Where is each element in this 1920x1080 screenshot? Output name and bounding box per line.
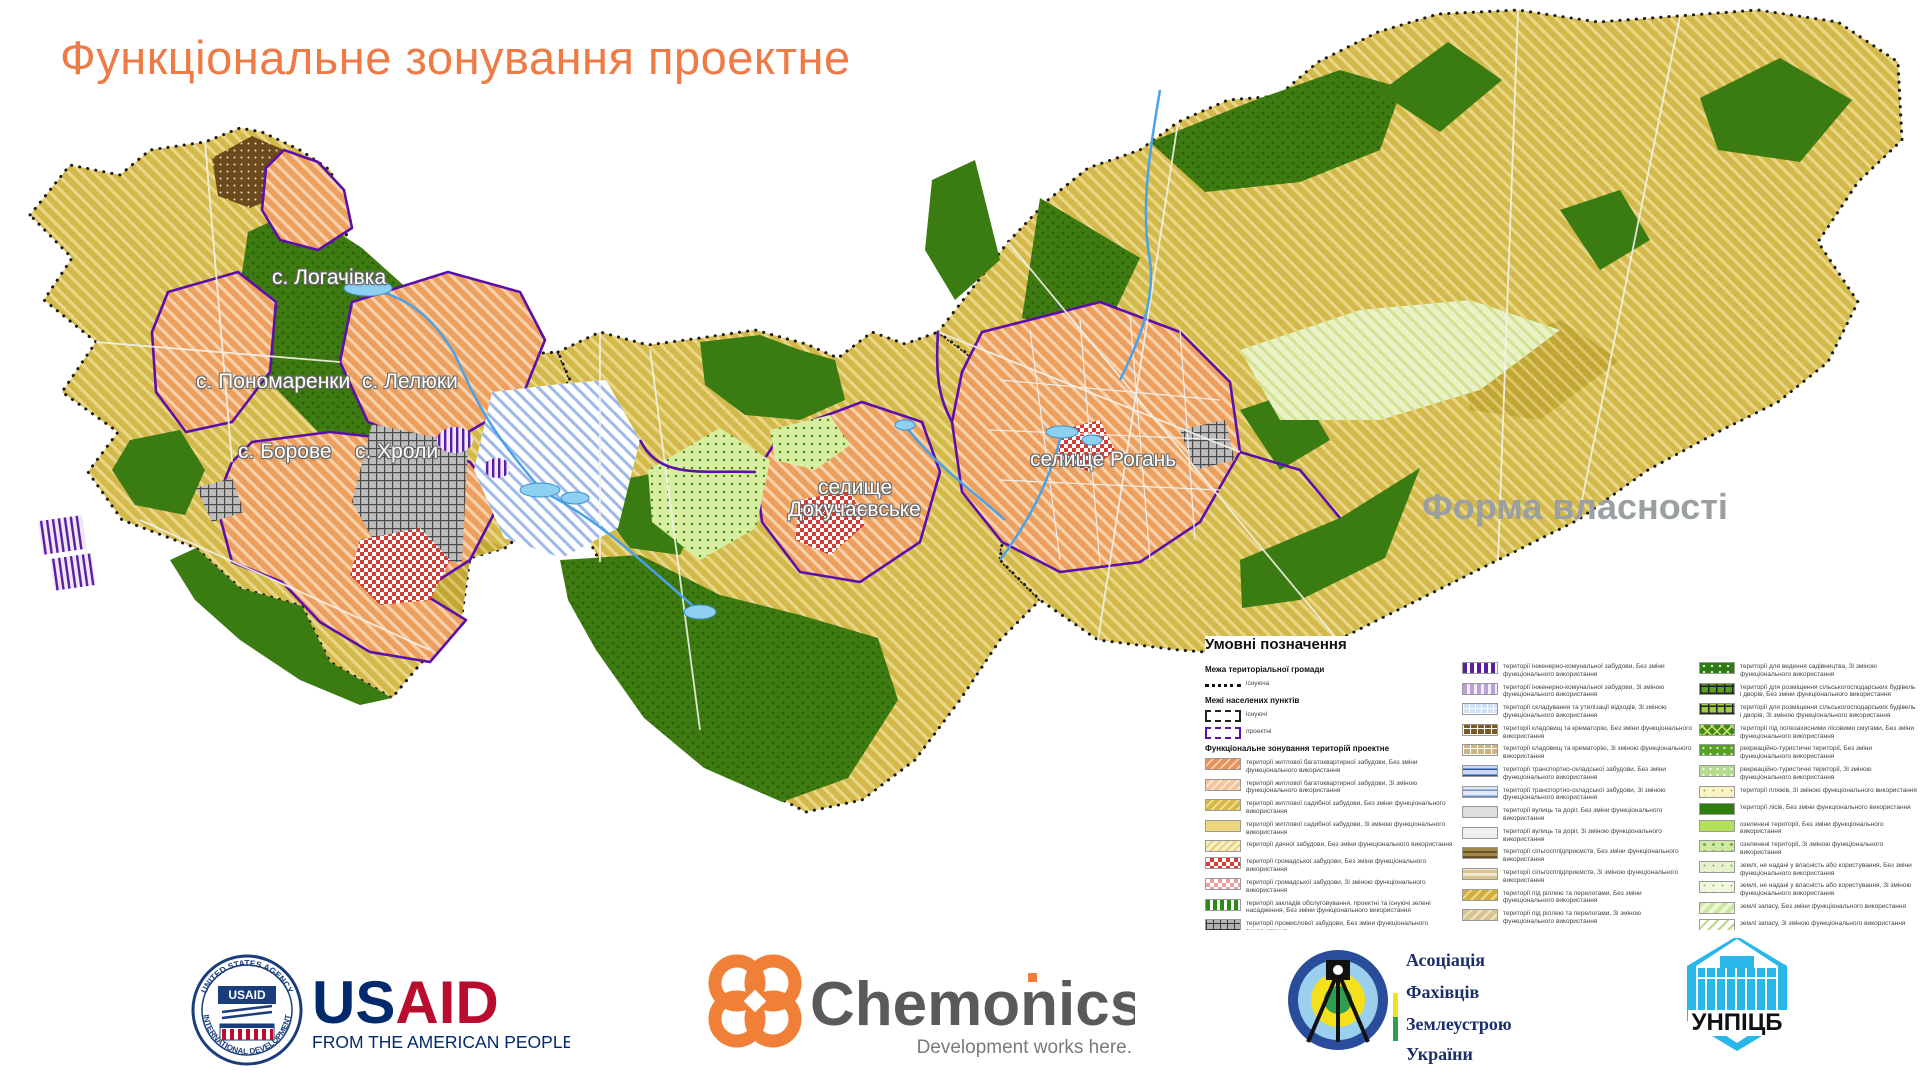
legend-swatch	[1205, 899, 1241, 911]
unpicb-hexagon-icon: УНПІЦБ	[1687, 938, 1788, 1051]
chemonics-i-dot	[1028, 973, 1037, 982]
legend-swatch	[1699, 744, 1735, 756]
legend-swatch	[1205, 779, 1241, 791]
legend-row: території сільгосппідприємств, Без зміни…	[1462, 847, 1694, 864]
legend-label: землі, не надані у власність або користу…	[1740, 881, 1917, 898]
legend-label: території для розміщення сільськогоспода…	[1740, 683, 1917, 700]
ownership-section-label: Форма власності	[1422, 486, 1728, 528]
legend-label: рекреаційно-туристичні території, Зі змі…	[1740, 765, 1917, 782]
legend-row: території лісів, Без зміни функціонально…	[1699, 803, 1917, 816]
legend-label: рекреаційно-туристичні території, Без зм…	[1740, 744, 1917, 761]
legend-label: території лісів, Без зміни функціонально…	[1740, 803, 1911, 812]
settlement-label: с. Пономаренки	[196, 370, 350, 394]
legend-swatch	[1699, 902, 1735, 914]
svg-text:України: України	[1406, 1044, 1473, 1064]
chemonics-logo: Chemonics Development works here.	[695, 945, 1135, 1070]
legend-swatch	[1205, 684, 1241, 687]
footer-logos: UNITED STATES AGENCY INTERNATIONAL DEVEL…	[0, 930, 1920, 1080]
legend-label: озеленені території, Зі зміною функціона…	[1740, 840, 1917, 857]
legend-swatch	[1205, 758, 1241, 770]
legend-row: території пляжів, Зі зміною функціональн…	[1699, 786, 1917, 799]
legend-swatch	[1462, 868, 1498, 880]
unpicb-logo: УНПІЦБ	[1650, 938, 1830, 1073]
legend-swatch	[1699, 861, 1735, 873]
legend-row: проектні	[1205, 727, 1457, 740]
legend-row: Межі населених пунктів	[1205, 696, 1457, 706]
afzu-logo: Асоціація Фахівців Землеустрою України	[1280, 938, 1580, 1073]
afzu-name: Асоціація Фахівців Землеустрою України	[1406, 950, 1512, 1064]
svg-text:Фахівців: Фахівців	[1406, 982, 1480, 1002]
legend-label: території вулиць та доріг, Зі зміною фун…	[1503, 827, 1694, 844]
legend-row: території інженерно-комунальної забудови…	[1462, 662, 1694, 679]
legend-row: території транспортно-складської забудов…	[1462, 786, 1694, 803]
legend-row: землі, не надані у власність або користу…	[1699, 861, 1917, 878]
legend-label: території кладовищ та крематорію, Зі змі…	[1503, 744, 1694, 761]
legend-label: території житлової садибної забудови, Бе…	[1246, 799, 1457, 816]
legend-swatch	[1699, 683, 1735, 695]
legend-swatch	[1205, 840, 1241, 852]
settlement-label: с. Хроли	[355, 440, 438, 464]
legend-swatch	[1205, 710, 1241, 722]
legend-swatch	[1699, 662, 1735, 674]
legend-row: території закладів обслуговування, проек…	[1205, 899, 1457, 916]
legend-label: території сільгосппідприємств, Зі зміною…	[1503, 868, 1694, 885]
usaid-seal-stripes	[220, 1024, 274, 1040]
settlement-label: Докучаєвське	[788, 498, 921, 522]
legend-label: території для розміщення сільськогоспода…	[1740, 703, 1917, 720]
legend-swatch	[1699, 786, 1735, 798]
legend-label: території інженерно-комунальної забудови…	[1503, 662, 1694, 679]
legend-row: території для розміщення сільськогоспода…	[1699, 703, 1917, 720]
legend-label: території транспортно-складської забудов…	[1503, 765, 1694, 782]
legend-swatch	[1462, 724, 1498, 736]
legend-label: існуючі	[1246, 710, 1267, 719]
legend-swatch	[1462, 806, 1498, 818]
legend-label: території закладів обслуговування, проек…	[1246, 899, 1457, 916]
svg-text:Землеустрою: Землеустрою	[1406, 1014, 1512, 1034]
legend-swatch	[1462, 827, 1498, 839]
legend-swatch	[1462, 909, 1498, 921]
legend-row: озеленені території, Без зміни функціона…	[1699, 820, 1917, 837]
legend-row: рекреаційно-туристичні території, Без зм…	[1699, 744, 1917, 761]
legend-row: землі, не надані у власність або користу…	[1699, 881, 1917, 898]
legend-label: землі, не надані у власність або користу…	[1740, 861, 1917, 878]
legend-label: території дачної забудови, Без зміни фун…	[1246, 840, 1453, 849]
legend-swatch	[1699, 703, 1735, 715]
legend-column-2: території інженерно-комунальної забудови…	[1462, 662, 1694, 971]
legend-row: території транспортно-складської забудов…	[1462, 765, 1694, 782]
legend-row: території для розміщення сільськогоспода…	[1699, 683, 1917, 700]
legend-row: території житлової багатоквартирної забу…	[1205, 779, 1457, 796]
legend-row: Межа територіальної громади	[1205, 665, 1457, 675]
legend-row: рекреаційно-туристичні території, Зі змі…	[1699, 765, 1917, 782]
legend-row: території складування та утилізації відх…	[1462, 703, 1694, 720]
legend-row: території під ріллею та перелогами, Без …	[1462, 889, 1694, 906]
legend-swatch	[1462, 765, 1498, 777]
legend-label: території інженерно-комунальної забудови…	[1503, 683, 1694, 700]
legend-row: території житлової садибної забудови, Бе…	[1205, 799, 1457, 816]
legend-label: території вулиць та доріг, Без зміни фун…	[1503, 806, 1694, 823]
legend-row: території дачної забудови, Без зміни фун…	[1205, 840, 1457, 853]
legend-label: території для ведення садівництва, Зі зм…	[1740, 662, 1917, 679]
legend-swatch	[1462, 744, 1498, 756]
legend-swatch	[1699, 881, 1735, 893]
legend-label: території кладовищ та крематорію, Без зм…	[1503, 724, 1694, 741]
legend-row: існуюча	[1205, 679, 1457, 692]
afzu-emblem-icon	[1288, 950, 1388, 1050]
chemonics-tagline: Development works here.	[917, 1037, 1132, 1058]
legend-row: території кладовищ та крематорію, Без зм…	[1462, 724, 1694, 741]
afzu-flag-yellow	[1393, 993, 1398, 1017]
legend-label: території під ріллею та перелогами, Без …	[1503, 889, 1694, 906]
legend-row: території сільгосппідприємств, Зі зміною…	[1462, 868, 1694, 885]
legend-row: території житлової садибної забудови, Зі…	[1205, 820, 1457, 837]
legend-label: території житлової багатоквартирної забу…	[1246, 758, 1457, 775]
legend-swatch	[1462, 847, 1498, 859]
legend-row: існуючі	[1205, 710, 1457, 723]
legend-label: землі запасу, Зі зміною функціонального …	[1740, 919, 1906, 928]
legend-label: території громадської забудови, Без змін…	[1246, 857, 1457, 874]
afzu-flag-green	[1393, 1017, 1398, 1041]
legend-label: території сільгосппідприємств, Без зміни…	[1503, 847, 1694, 864]
settlement-lohachivka	[262, 150, 352, 250]
legend-label: території під полезахисними лісовими сму…	[1740, 724, 1917, 741]
settlement-label: с. Борове	[238, 440, 332, 464]
legend-swatch	[1699, 820, 1735, 832]
legend-swatch	[1462, 662, 1498, 674]
legend-label: землі запасу, Без зміни функціонального …	[1740, 902, 1906, 911]
legend-row: території інженерно-комунальної забудови…	[1462, 683, 1694, 700]
legend-row: території громадської забудови, Без змін…	[1205, 857, 1457, 874]
legend: Умовні позначення Межа територіальної гр…	[1205, 636, 1917, 936]
legend-label: території під ріллею та перелогами, Зі з…	[1503, 909, 1694, 926]
legend-swatch	[1205, 799, 1241, 811]
legend-row: території для ведення садівництва, Зі зм…	[1699, 662, 1917, 679]
legend-label: проектні	[1246, 727, 1271, 736]
usaid-logo: UNITED STATES AGENCY INTERNATIONAL DEVEL…	[170, 948, 570, 1073]
legend-row: території кладовищ та крематорію, Зі змі…	[1462, 744, 1694, 761]
legend-label: озеленені території, Без зміни функціона…	[1740, 820, 1917, 837]
settlement-label: селище	[818, 476, 892, 500]
legend-label: території громадської забудови, Зі зміно…	[1246, 878, 1457, 895]
svg-text:Асоціація: Асоціація	[1406, 950, 1485, 970]
settlement-label: с. Логачівка	[272, 266, 386, 290]
legend-swatch	[1205, 878, 1241, 890]
legend-swatch	[1462, 683, 1498, 695]
slide: с. Логачівкас. Пономаренкис. Лелюкис. Бо…	[0, 0, 1920, 1080]
legend-label: території складування та утилізації відх…	[1503, 703, 1694, 720]
legend-column-3: території для ведення садівництва, Зі зм…	[1699, 662, 1917, 957]
legend-swatch	[1699, 765, 1735, 777]
legend-row: території вулиць та доріг, Зі зміною фун…	[1462, 827, 1694, 844]
legend-swatch	[1205, 727, 1241, 739]
legend-row: Функціональне зонування територій проект…	[1205, 744, 1457, 754]
legend-label: території транспортно-складської забудов…	[1503, 786, 1694, 803]
legend-swatch	[1462, 703, 1498, 715]
legend-label: існуюча	[1246, 679, 1269, 688]
legend-swatch	[1462, 889, 1498, 901]
legend-section-title: Межа територіальної громади	[1205, 665, 1324, 674]
legend-swatch	[1699, 803, 1735, 815]
legend-row: території житлової багатоквартирної забу…	[1205, 758, 1457, 775]
chemonics-wordmark: Chemonics	[810, 970, 1135, 1039]
svg-text:USAID: USAID	[228, 988, 266, 1002]
settlement-label: с. Лелюки	[362, 370, 458, 394]
usaid-wordmark: USAID	[312, 969, 499, 1036]
legend-label: території пляжів, Зі зміною функціональн…	[1740, 786, 1917, 795]
legend-section-title: Функціональне зонування територій проект…	[1205, 744, 1389, 753]
legend-section-title: Межі населених пунктів	[1205, 696, 1299, 705]
legend-label: території житлової садибної забудови, Зі…	[1246, 820, 1457, 837]
legend-row: озеленені території, Зі зміною функціона…	[1699, 840, 1917, 857]
legend-title: Умовні позначення	[1205, 636, 1917, 653]
legend-row: території вулиць та доріг, Без зміни фун…	[1462, 806, 1694, 823]
unpicb-wordmark: УНПІЦБ	[1692, 1009, 1783, 1036]
legend-row: території під ріллею та перелогами, Зі з…	[1462, 909, 1694, 926]
legend-column-1: Межа територіальної громади існуюча Межі…	[1205, 662, 1457, 960]
legend-label: території житлової багатоквартирної забу…	[1246, 779, 1457, 796]
usaid-tagline: FROM THE AMERICAN PEOPLE	[312, 1032, 570, 1052]
legend-row: території під полезахисними лісовими сму…	[1699, 724, 1917, 741]
legend-swatch	[1205, 820, 1241, 832]
settlement-label: селище Рогань	[1030, 448, 1176, 472]
legend-swatch	[1699, 724, 1735, 736]
legend-swatch	[1205, 857, 1241, 869]
page-title: Функціональне зонування проектне	[60, 30, 851, 85]
legend-swatch	[1462, 786, 1498, 798]
legend-row: території громадської забудови, Зі зміно…	[1205, 878, 1457, 895]
legend-row: землі запасу, Без зміни функціонального …	[1699, 902, 1917, 915]
legend-swatch	[1699, 840, 1735, 852]
